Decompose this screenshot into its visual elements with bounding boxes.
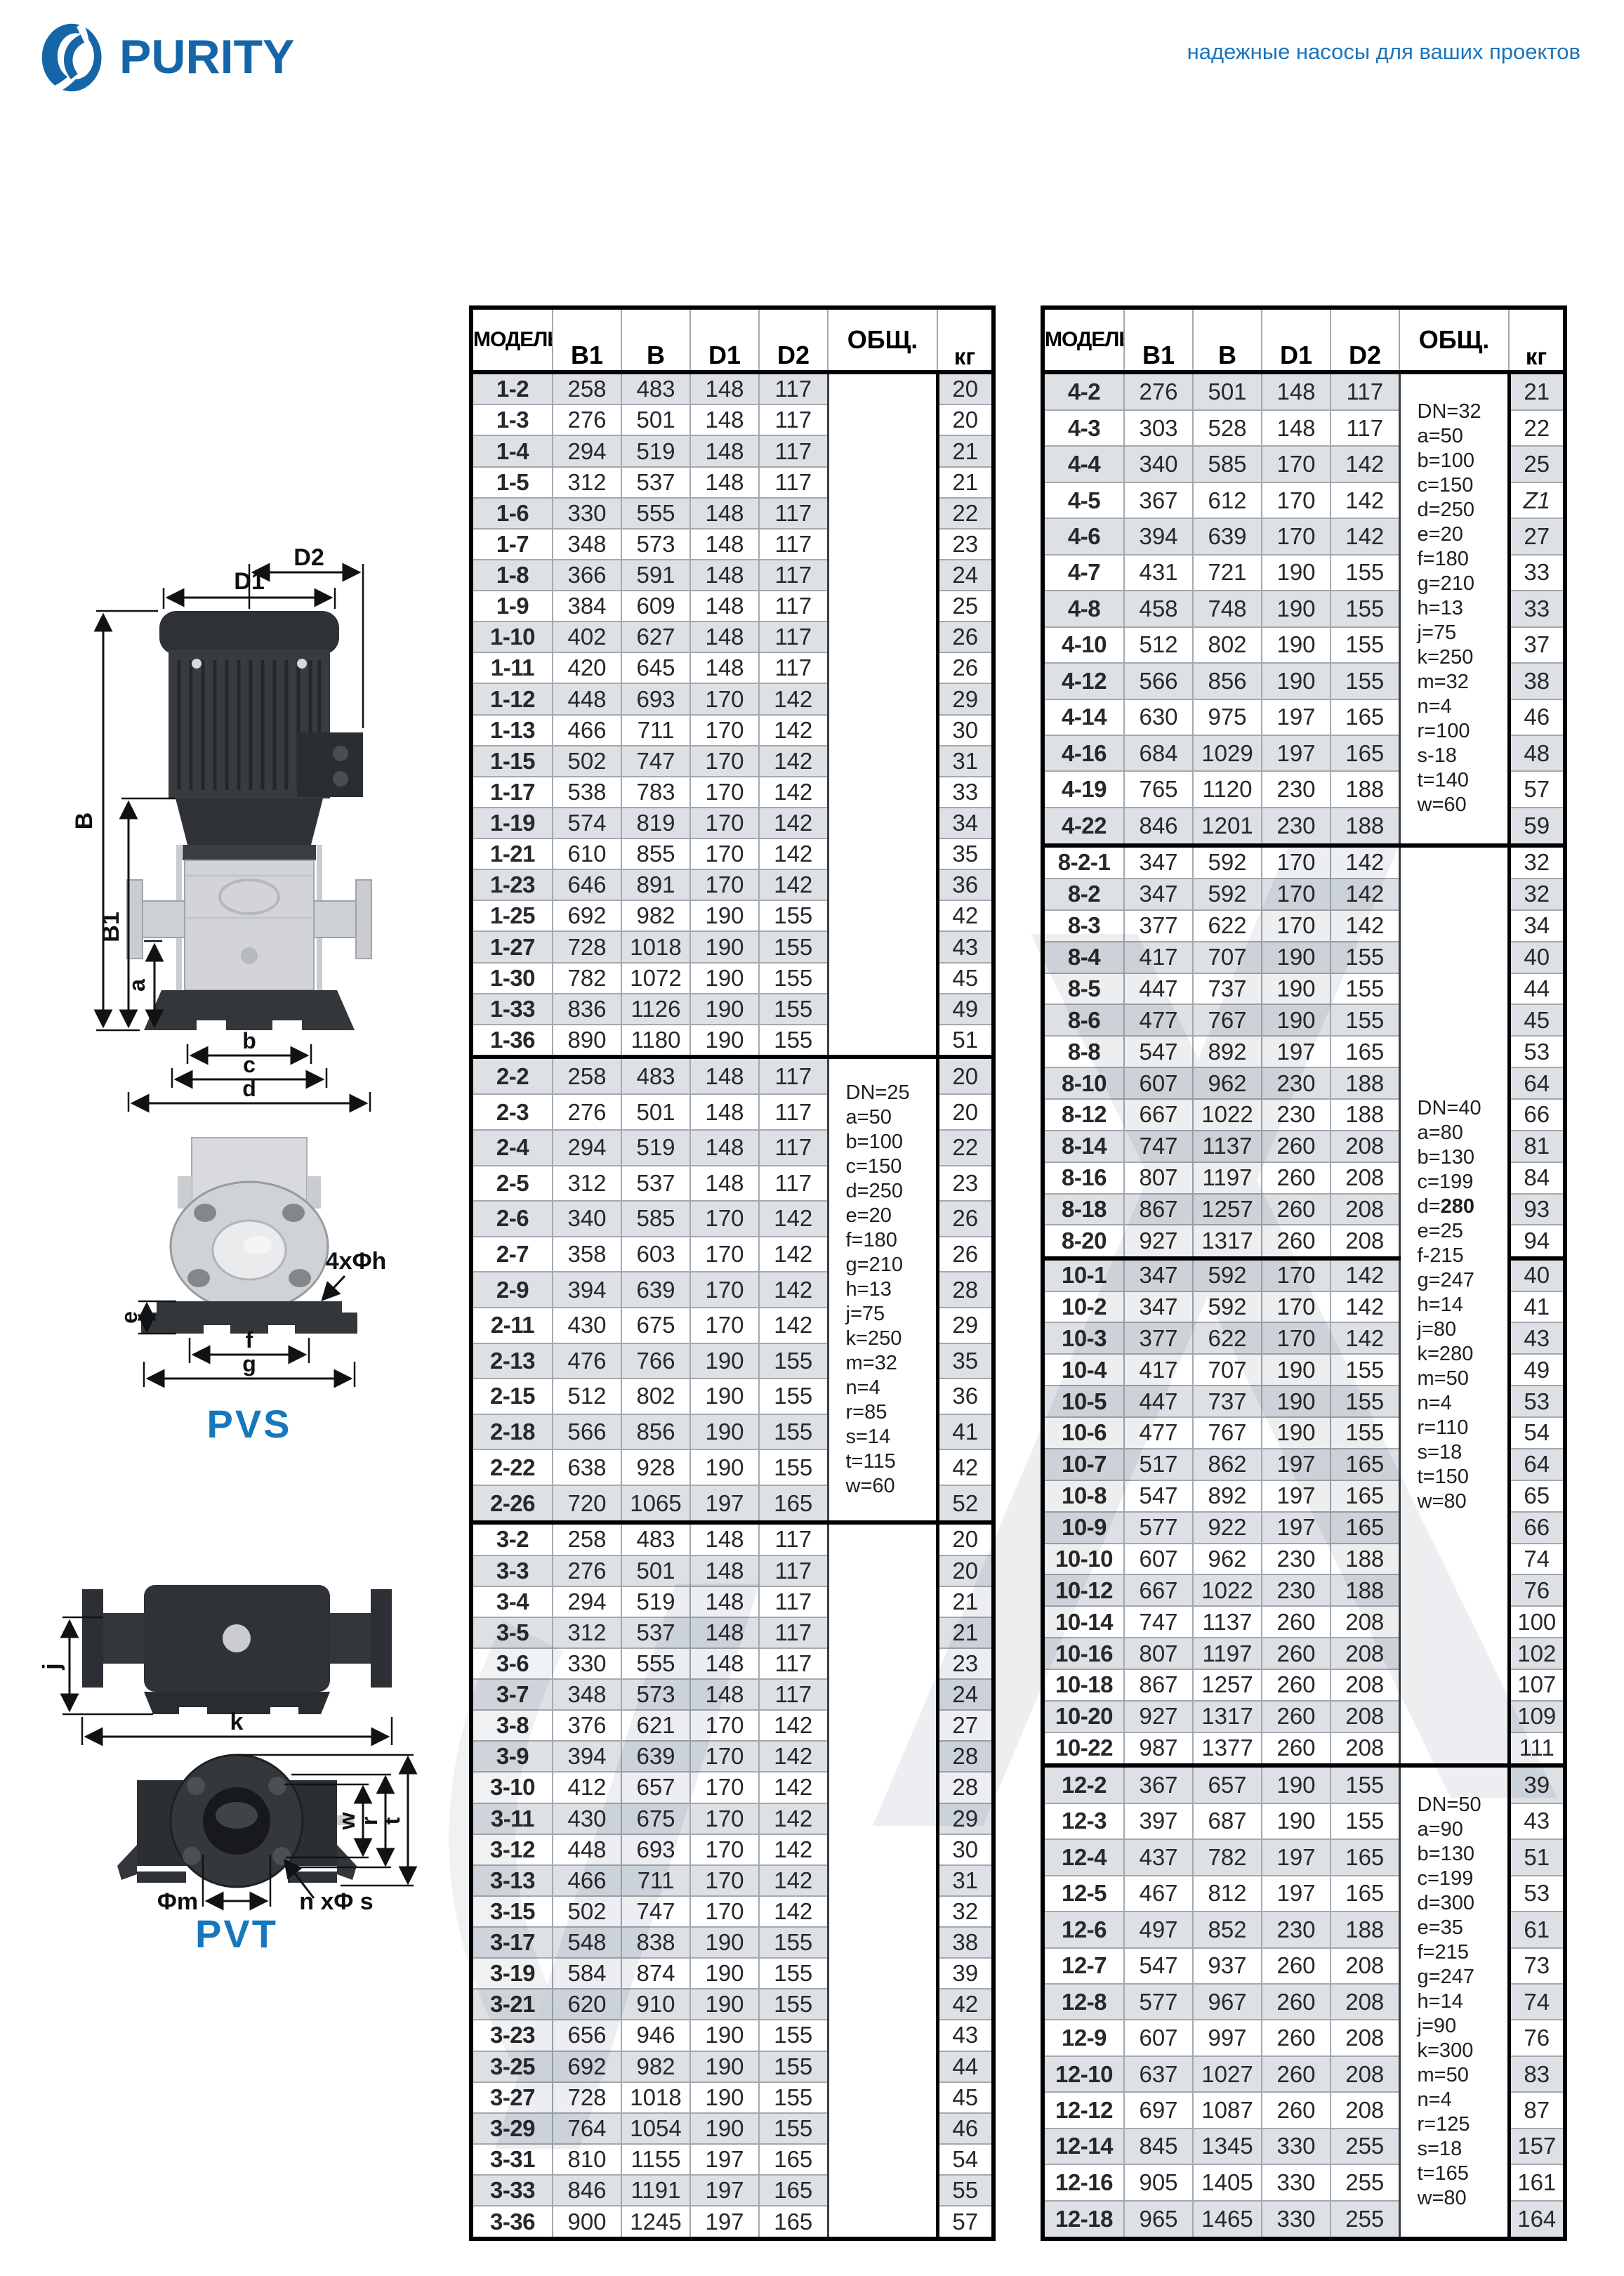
model-cell: 1-12 (471, 683, 553, 714)
model-cell: 2-2 (471, 1057, 553, 1094)
value-cell: 258 (553, 1522, 621, 1555)
value-cell: 170 (690, 1272, 759, 1308)
value-cell: 148 (690, 652, 759, 683)
value-cell: 620 (553, 1989, 621, 2020)
model-cell: 2-7 (471, 1237, 553, 1272)
kg-cell: 43 (1509, 1322, 1565, 1354)
value-cell: 208 (1331, 1162, 1399, 1194)
value-cell: 584 (553, 1958, 621, 1989)
value-cell: 117 (1331, 372, 1399, 410)
kg-cell: 51 (937, 1025, 993, 1057)
kg-cell: 53 (1509, 1036, 1565, 1067)
value-cell: 142 (759, 1803, 828, 1834)
value-cell: 260 (1262, 1984, 1331, 2020)
value-cell: 502 (553, 746, 621, 777)
kg-cell: 45 (1509, 1004, 1565, 1036)
kg-cell: 43 (937, 931, 993, 962)
model-cell: 1-30 (471, 963, 553, 994)
value-cell: 982 (621, 2051, 690, 2082)
value-cell: 1197 (1193, 1162, 1262, 1194)
value-cell: 190 (1262, 1417, 1331, 1449)
model-cell: 12-12 (1043, 2092, 1124, 2128)
kg-cell: 20 (937, 1057, 993, 1094)
kg-cell: 55 (937, 2175, 993, 2206)
value-cell: 448 (553, 683, 621, 714)
value-cell: 142 (759, 1710, 828, 1741)
value-cell: 197 (690, 1485, 759, 1522)
value-cell: 767 (1193, 1417, 1262, 1449)
value-cell: 117 (759, 1057, 828, 1094)
kg-cell: 61 (1509, 1912, 1565, 1947)
value-cell: 155 (759, 2113, 828, 2144)
value-cell: 230 (1262, 1574, 1331, 1606)
value-cell: 260 (1262, 1225, 1331, 1258)
value-cell: 165 (759, 2175, 828, 2206)
value-cell: 900 (553, 2206, 621, 2239)
value-cell: 639 (621, 1741, 690, 1772)
model-cell: 10-14 (1043, 1606, 1124, 1638)
kg-cell: 40 (1509, 942, 1565, 973)
value-cell: 170 (1262, 1291, 1331, 1323)
value-cell: 905 (1124, 2164, 1193, 2200)
value-cell: 117 (759, 498, 828, 529)
value-cell: 517 (1124, 1449, 1193, 1480)
kg-cell: 28 (937, 1772, 993, 1803)
kg-cell: 94 (1509, 1225, 1565, 1258)
value-cell: 142 (759, 683, 828, 714)
value-cell: 656 (553, 2020, 621, 2051)
model-cell: 3-2 (471, 1522, 553, 1555)
value-cell: 148 (690, 1617, 759, 1648)
value-cell: 537 (621, 1166, 690, 1202)
model-cell: 4-2 (1043, 372, 1124, 410)
kg-cell: 20 (937, 1555, 993, 1586)
value-cell: 819 (621, 808, 690, 838)
value-cell: 577 (1124, 1984, 1193, 2020)
model-cell: 4-8 (1043, 591, 1124, 626)
value-cell: 142 (759, 1834, 828, 1865)
value-cell: 867 (1124, 1194, 1193, 1225)
value-cell: 747 (621, 746, 690, 777)
value-cell: 1257 (1193, 1669, 1262, 1701)
value-cell: 165 (759, 2144, 828, 2175)
value-cell: 190 (1262, 973, 1331, 1005)
value-cell: 142 (1331, 1258, 1399, 1291)
value-cell: 117 (759, 404, 828, 435)
value-cell: 430 (553, 1308, 621, 1343)
value-cell: 836 (553, 994, 621, 1025)
kg-cell: 21 (937, 1617, 993, 1648)
value-cell: 142 (759, 1237, 828, 1272)
value-cell: 170 (690, 1834, 759, 1865)
value-cell: 208 (1331, 1701, 1399, 1732)
value-cell: 208 (1331, 1669, 1399, 1701)
value-cell: 260 (1262, 1638, 1331, 1669)
model-cell: 4-6 (1043, 518, 1124, 554)
value-cell: 1345 (1193, 2129, 1262, 2164)
model-cell: 12-14 (1043, 2129, 1124, 2164)
kg-cell: 21 (937, 435, 993, 466)
value-cell: 170 (690, 1865, 759, 1896)
value-cell: 155 (759, 1379, 828, 1414)
value-cell: 748 (1193, 591, 1262, 626)
kg-cell: 48 (1509, 735, 1565, 771)
value-cell: 188 (1331, 1574, 1399, 1606)
value-cell: 962 (1193, 1067, 1262, 1099)
dim-label-b-height: B (71, 813, 98, 830)
kg-cell: 20 (937, 1522, 993, 1555)
model-cell: 2-6 (471, 1201, 553, 1237)
value-cell: 592 (1193, 846, 1262, 879)
model-cell: 4-5 (1043, 482, 1124, 518)
value-cell: 946 (621, 2020, 690, 2051)
value-cell: 693 (621, 1834, 690, 1865)
company-tagline: надежные насосы для ваших проектов (1187, 39, 1580, 65)
value-cell: 330 (553, 1648, 621, 1679)
value-cell: 394 (553, 1272, 621, 1308)
value-cell: 117 (759, 621, 828, 652)
value-cell: 627 (621, 621, 690, 652)
value-cell: 170 (690, 1803, 759, 1834)
value-cell: 519 (621, 1130, 690, 1166)
value-cell: 190 (1262, 942, 1331, 973)
kg-cell: 39 (937, 1958, 993, 1989)
kg-cell: 54 (937, 2144, 993, 2175)
kg-cell: 21 (937, 1586, 993, 1617)
value-cell: 165 (1331, 735, 1399, 771)
value-cell: 501 (621, 404, 690, 435)
value-cell: 155 (1331, 1354, 1399, 1386)
value-cell: 276 (553, 1094, 621, 1130)
note-cell: DN=25a=50b=100c=150d=250e=20f=180g=210h=… (828, 1057, 937, 1522)
value-cell: 607 (1124, 1067, 1193, 1099)
value-cell: 874 (621, 1958, 690, 1989)
value-cell: 483 (621, 1522, 690, 1555)
value-cell: 188 (1331, 1099, 1399, 1131)
value-cell: 230 (1262, 771, 1331, 807)
value-cell: 117 (759, 1130, 828, 1166)
value-cell: 190 (1262, 1386, 1331, 1417)
value-cell: 807 (1124, 1162, 1193, 1194)
kg-cell: 24 (937, 560, 993, 591)
dim-label-f: f (246, 1327, 253, 1353)
value-cell: 1201 (1193, 808, 1262, 846)
value-cell: 692 (553, 2051, 621, 2082)
kg-cell: 33 (1509, 591, 1565, 626)
value-cell: 962 (1193, 1544, 1262, 1575)
model-cell: 3-11 (471, 1803, 553, 1834)
value-cell: 997 (1193, 2020, 1262, 2055)
value-cell: 148 (690, 1555, 759, 1586)
value-cell: 155 (759, 1025, 828, 1057)
value-cell: 294 (553, 1130, 621, 1166)
value-cell: 190 (1262, 591, 1331, 626)
value-cell: 190 (1262, 663, 1331, 699)
model-cell: 1-13 (471, 715, 553, 746)
value-cell: 767 (1193, 1004, 1262, 1036)
value-cell: 208 (1331, 1606, 1399, 1638)
value-cell: 783 (621, 777, 690, 808)
value-cell: 170 (690, 1237, 759, 1272)
column-header: D2 (1331, 308, 1399, 372)
value-cell: 155 (1331, 663, 1399, 699)
value-cell: 208 (1331, 1638, 1399, 1669)
column-header: МОДЕЛЬ (471, 308, 553, 372)
value-cell: 197 (1262, 699, 1331, 735)
model-cell: 3-7 (471, 1679, 553, 1710)
kg-cell: 157 (1509, 2129, 1565, 2164)
value-cell: 477 (1124, 1004, 1193, 1036)
dim-label-d: d (242, 1076, 256, 1101)
value-cell: 142 (759, 715, 828, 746)
kg-cell: 33 (1509, 555, 1565, 591)
value-cell: 447 (1124, 1386, 1193, 1417)
value-cell: 260 (1262, 1162, 1331, 1194)
kg-cell: 53 (1509, 1876, 1565, 1912)
value-cell: 148 (690, 467, 759, 498)
value-cell: 747 (1124, 1606, 1193, 1638)
model-cell: 2-13 (471, 1343, 553, 1379)
kg-cell: 81 (1509, 1131, 1565, 1162)
value-cell: 142 (1331, 482, 1399, 518)
value-cell: 512 (553, 1379, 621, 1414)
value-cell: 697 (1124, 2092, 1193, 2128)
value-cell: 208 (1331, 1732, 1399, 1765)
value-cell: 142 (759, 1741, 828, 1772)
value-cell: 197 (1262, 1036, 1331, 1067)
value-cell: 170 (690, 683, 759, 714)
kg-cell: 25 (937, 591, 993, 621)
value-cell: 190 (690, 1414, 759, 1450)
value-cell: 155 (759, 1958, 828, 1989)
model-cell: 10-18 (1043, 1669, 1124, 1701)
value-cell: 855 (621, 838, 690, 869)
kg-cell: 100 (1509, 1606, 1565, 1638)
pvt-side-view (82, 1585, 392, 1714)
value-cell: 483 (621, 372, 690, 404)
model-cell: 1-2 (471, 372, 553, 404)
model-cell: 1-17 (471, 777, 553, 808)
kg-cell: 42 (937, 900, 993, 931)
model-cell: 1-9 (471, 591, 553, 621)
value-cell: 537 (621, 467, 690, 498)
model-cell: 3-8 (471, 1710, 553, 1741)
note-cell: DN=50a=90b=130c=199d=300e=35f=215g=247h=… (1399, 1765, 1509, 2239)
model-cell: 1-6 (471, 498, 553, 529)
value-cell: 645 (621, 652, 690, 683)
model-cell: 8-5 (1043, 973, 1124, 1005)
value-cell: 148 (690, 560, 759, 591)
value-cell: 312 (553, 1166, 621, 1202)
value-cell: 170 (690, 777, 759, 808)
dim-label-d2: D2 (293, 544, 324, 571)
column-header: B (621, 308, 690, 372)
value-cell: 607 (1124, 1544, 1193, 1575)
value-cell: 260 (1262, 1194, 1331, 1225)
value-cell: 208 (1331, 1984, 1399, 2020)
value-cell: 170 (690, 1710, 759, 1741)
value-cell: 607 (1124, 2020, 1193, 2055)
model-cell: 8-12 (1043, 1099, 1124, 1131)
value-cell: 728 (553, 2082, 621, 2113)
dim-label-k: k (230, 1709, 244, 1735)
value-cell: 148 (690, 1679, 759, 1710)
model-cell: 1-4 (471, 435, 553, 466)
column-header: D1 (690, 308, 759, 372)
value-cell: 190 (690, 2020, 759, 2051)
model-cell: 3-33 (471, 2175, 553, 2206)
value-cell: 260 (1262, 2020, 1331, 2055)
kg-cell: 46 (937, 2113, 993, 2144)
value-cell: 197 (1262, 735, 1331, 771)
kg-cell: 23 (937, 1166, 993, 1202)
purity-logo-icon (37, 20, 111, 94)
kg-cell: 54 (1509, 1417, 1565, 1449)
value-cell: 208 (1331, 2056, 1399, 2092)
kg-cell: 57 (1509, 771, 1565, 807)
value-cell: 312 (553, 1617, 621, 1648)
model-cell: 1-21 (471, 838, 553, 869)
value-cell: 117 (759, 467, 828, 498)
kg-cell: 46 (1509, 699, 1565, 735)
value-cell: 802 (1193, 627, 1262, 663)
value-cell: 1054 (621, 2113, 690, 2144)
value-cell: 612 (1193, 482, 1262, 518)
kg-cell: Z1 (1509, 482, 1565, 518)
flange-note: DN=40a=80b=130c=199d=280e=25f-215g=247h=… (1401, 1096, 1507, 1514)
value-cell: 622 (1193, 1322, 1262, 1354)
value-cell: 377 (1124, 1322, 1193, 1354)
value-cell: 1018 (621, 2082, 690, 2113)
model-cell: 10-20 (1043, 1701, 1124, 1732)
kg-cell: 45 (937, 963, 993, 994)
model-cell: 3-31 (471, 2144, 553, 2175)
model-cell: 1-5 (471, 467, 553, 498)
value-cell: 347 (1124, 1291, 1193, 1323)
brand-name: PURITY (119, 33, 294, 81)
dim-label-phi-m: Φm (157, 1888, 198, 1915)
value-cell: 358 (553, 1237, 621, 1272)
value-cell: 155 (1331, 973, 1399, 1005)
model-cell: 10-10 (1043, 1544, 1124, 1575)
model-cell: 4-10 (1043, 627, 1124, 663)
value-cell: 117 (759, 1586, 828, 1617)
model-cell: 10-8 (1043, 1480, 1124, 1512)
value-cell: 1317 (1193, 1701, 1262, 1732)
model-cell: 2-22 (471, 1449, 553, 1485)
dim-label-w: w (334, 1812, 359, 1830)
kg-cell: 44 (1509, 973, 1565, 1005)
value-cell: 1245 (621, 2206, 690, 2239)
value-cell: 1257 (1193, 1194, 1262, 1225)
model-cell: 8-6 (1043, 1004, 1124, 1036)
model-cell: 3-23 (471, 2020, 553, 2051)
kg-cell: 20 (937, 1094, 993, 1130)
kg-cell: 41 (1509, 1291, 1565, 1323)
column-header: D2 (759, 308, 828, 372)
model-cell: 12-6 (1043, 1912, 1124, 1947)
value-cell: 728 (553, 931, 621, 962)
value-cell: 892 (1193, 1036, 1262, 1067)
value-cell: 190 (690, 994, 759, 1025)
kg-cell: 59 (1509, 808, 1565, 846)
value-cell: 765 (1124, 771, 1193, 807)
value-cell: 188 (1331, 1067, 1399, 1099)
column-header: МОДЕЛЬ (1043, 308, 1124, 372)
model-cell: 1-8 (471, 560, 553, 591)
value-cell: 276 (553, 1555, 621, 1586)
value-cell: 260 (1262, 1948, 1331, 1984)
model-cell: 8-20 (1043, 1225, 1124, 1258)
model-cell: 3-17 (471, 1927, 553, 1958)
note-cell: DN=40a=80b=130c=199d=280e=25f-215g=247h=… (1399, 846, 1509, 1765)
value-cell: 260 (1262, 2092, 1331, 2128)
value-cell: 501 (1193, 372, 1262, 410)
model-cell: 4-7 (1043, 555, 1124, 591)
model-cell: 8-4 (1043, 942, 1124, 973)
model-cell: 8-2 (1043, 879, 1124, 910)
value-cell: 142 (759, 869, 828, 900)
flange-note: DN=32a=50b=100c=150d=250e=20f=180g=210h=… (1401, 400, 1507, 817)
value-cell: 197 (690, 2175, 759, 2206)
value-cell: 377 (1124, 910, 1193, 942)
dim-label-a: a (124, 979, 150, 992)
dim-label-t: t (379, 1817, 404, 1824)
kg-cell: 87 (1509, 2092, 1565, 2128)
model-cell: 1-15 (471, 746, 553, 777)
kg-cell: 35 (937, 838, 993, 869)
table-row: 1-225848314811720 (471, 372, 993, 404)
value-cell: 170 (690, 746, 759, 777)
value-cell: 197 (1262, 1449, 1331, 1480)
value-cell: 812 (1193, 1876, 1262, 1912)
value-cell: 402 (553, 621, 621, 652)
kg-cell: 64 (1509, 1067, 1565, 1099)
value-cell: 639 (1193, 518, 1262, 554)
value-cell: 260 (1262, 1669, 1331, 1701)
value-cell: 1126 (621, 994, 690, 1025)
kg-cell: 66 (1509, 1512, 1565, 1544)
value-cell: 982 (621, 900, 690, 931)
value-cell: 782 (553, 963, 621, 994)
value-cell: 170 (1262, 1322, 1331, 1354)
value-cell: 155 (759, 1414, 828, 1450)
value-cell: 466 (553, 1865, 621, 1896)
kg-cell: 22 (1509, 410, 1565, 446)
value-cell: 448 (553, 1834, 621, 1865)
value-cell: 155 (759, 900, 828, 931)
value-cell: 891 (621, 869, 690, 900)
model-cell: 12-7 (1043, 1948, 1124, 1984)
kg-cell: 66 (1509, 1099, 1565, 1131)
value-cell: 197 (1262, 1512, 1331, 1544)
value-cell: 577 (1124, 1512, 1193, 1544)
value-cell: 367 (1124, 482, 1193, 518)
value-cell: 927 (1124, 1225, 1193, 1258)
value-cell: 117 (1331, 410, 1399, 446)
kg-cell: 38 (1509, 663, 1565, 699)
value-cell: 747 (621, 1896, 690, 1927)
value-cell: 142 (759, 1772, 828, 1803)
value-cell: 155 (1331, 1417, 1399, 1449)
model-cell: 12-8 (1043, 1984, 1124, 2020)
model-cell: 10-2 (1043, 1291, 1124, 1323)
value-cell: 684 (1124, 735, 1193, 771)
value-cell: 117 (759, 529, 828, 560)
value-cell: 155 (759, 963, 828, 994)
dimensions-table-left: МОДЕЛЬB1BD1D2ОБЩ.кг1-2258483148117201-32… (469, 305, 996, 2241)
model-cell: 1-10 (471, 621, 553, 652)
